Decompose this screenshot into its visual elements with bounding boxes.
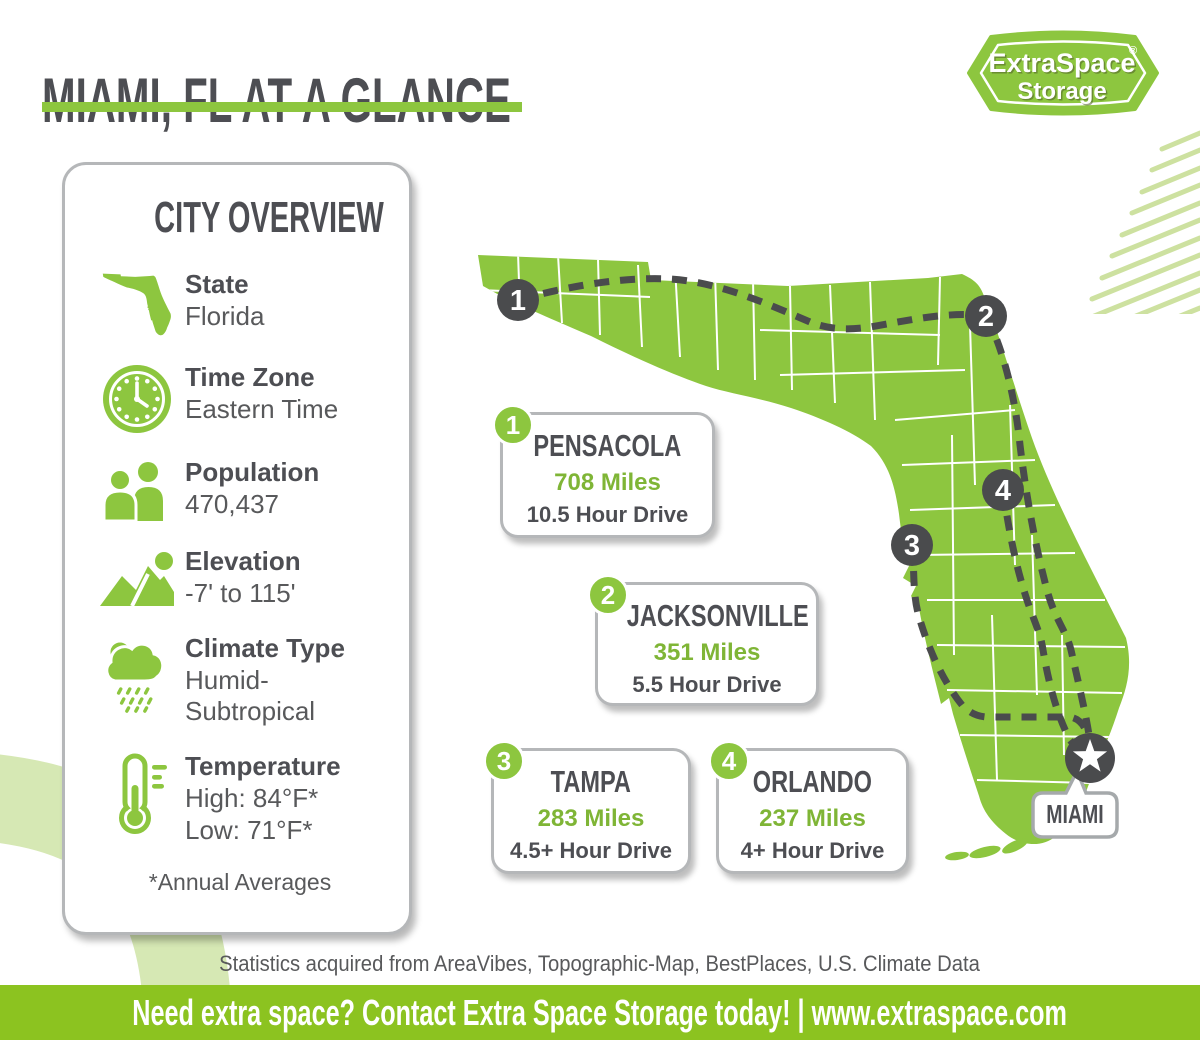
- title-underline: [42, 102, 522, 112]
- logo-registered-mark: ®: [1129, 45, 1137, 57]
- city-overview-title: CITY OVERVIEW: [95, 193, 385, 243]
- distance-card-city: PENSACOLA: [503, 430, 712, 461]
- distance-card-number-badge: 2: [587, 574, 629, 616]
- svg-text:2: 2: [978, 301, 994, 333]
- overview-value: -7' to 115': [185, 578, 301, 610]
- overview-value: 470,437: [185, 489, 319, 521]
- overview-row-temperature: Temperature High: 84°F* Low: 71°F*: [95, 751, 385, 846]
- svg-text:1: 1: [510, 285, 526, 317]
- distance-card-city: JACKSONVILLE: [598, 600, 816, 631]
- miami-label: MIAMI: [1046, 799, 1103, 828]
- distance-card-city: TAMPA: [494, 766, 688, 797]
- svg-text:3: 3: [904, 530, 920, 562]
- thermometer-icon: [95, 751, 179, 835]
- footer-bar: Need extra space? Contact Extra Space St…: [0, 985, 1200, 1040]
- distance-card-miles: 351 Miles: [598, 639, 816, 667]
- logo-line1: ExtraSpace: [988, 48, 1135, 78]
- distance-card-drive-time: 4+ Hour Drive: [719, 838, 906, 864]
- overview-label: Time Zone: [185, 362, 338, 394]
- overview-label: Population: [185, 457, 319, 489]
- distance-card-drive-time: 5.5 Hour Drive: [598, 672, 816, 698]
- overview-label: State: [185, 269, 264, 301]
- overview-row-elevation: Elevation -7' to 115': [95, 546, 385, 610]
- annual-averages-footnote: *Annual Averages: [95, 869, 385, 896]
- overview-value: Humid-: [185, 665, 345, 697]
- florida-state-icon: [95, 269, 179, 339]
- map-marker-1: 1: [497, 279, 539, 321]
- footer-bar-text: Need extra space? Contact Extra Space St…: [0, 992, 1200, 1034]
- distance-card-miles: 237 Miles: [719, 805, 906, 833]
- distance-card-drive-time: 10.5 Hour Drive: [503, 502, 712, 528]
- distance-card-tampa: 3 TAMPA 283 Miles 4.5+ Hour Drive: [491, 748, 691, 874]
- overview-value: High: 84°F*: [185, 783, 341, 815]
- svg-text:4: 4: [995, 475, 1011, 507]
- distance-card-number-badge: 4: [708, 740, 750, 782]
- map-marker-3: 3: [891, 524, 933, 566]
- overview-row-state: State Florida: [95, 269, 385, 339]
- elevation-icon: [95, 546, 179, 610]
- clock-icon: [95, 362, 179, 434]
- climate-rain-cloud-icon: [95, 633, 179, 713]
- distance-card-miles: 708 Miles: [503, 469, 712, 497]
- distance-card-drive-time: 4.5+ Hour Drive: [494, 838, 688, 864]
- logo-line2: Storage: [1017, 78, 1106, 105]
- distance-card-number-badge: 1: [492, 404, 534, 446]
- population-icon: [95, 457, 179, 523]
- overview-value: Florida: [185, 301, 264, 333]
- overview-value: Eastern Time: [185, 394, 338, 426]
- overview-row-population: Population 470,437: [95, 457, 385, 523]
- miami-star-marker: [1065, 733, 1115, 783]
- overview-row-climate: Climate Type Humid- Subtropical: [95, 633, 385, 728]
- statistics-source-note: Statistics acquired from AreaVibes, Topo…: [0, 951, 1200, 977]
- distance-card-pensacola: 1 PENSACOLA 708 Miles 10.5 Hour Drive: [500, 412, 715, 538]
- distance-card-orlando: 4 ORLANDO 237 Miles 4+ Hour Drive: [716, 748, 909, 874]
- map-marker-2: 2: [965, 295, 1007, 337]
- map-marker-4: 4: [982, 469, 1024, 511]
- extra-space-storage-logo: ExtraSpace Storage ExtraSpace ® Storage: [966, 28, 1160, 118]
- overview-label: Temperature: [185, 751, 341, 783]
- distance-card-miles: 283 Miles: [494, 805, 688, 833]
- overview-label: Elevation: [185, 546, 301, 578]
- city-overview-card: CITY OVERVIEW State Florida: [62, 162, 412, 935]
- overview-label: Climate Type: [185, 633, 345, 665]
- distance-card-number-badge: 3: [483, 740, 525, 782]
- overview-row-timezone: Time Zone Eastern Time: [95, 362, 385, 434]
- distance-card-jacksonville: 2 JACKSONVILLE 351 Miles 5.5 Hour Drive: [595, 582, 819, 706]
